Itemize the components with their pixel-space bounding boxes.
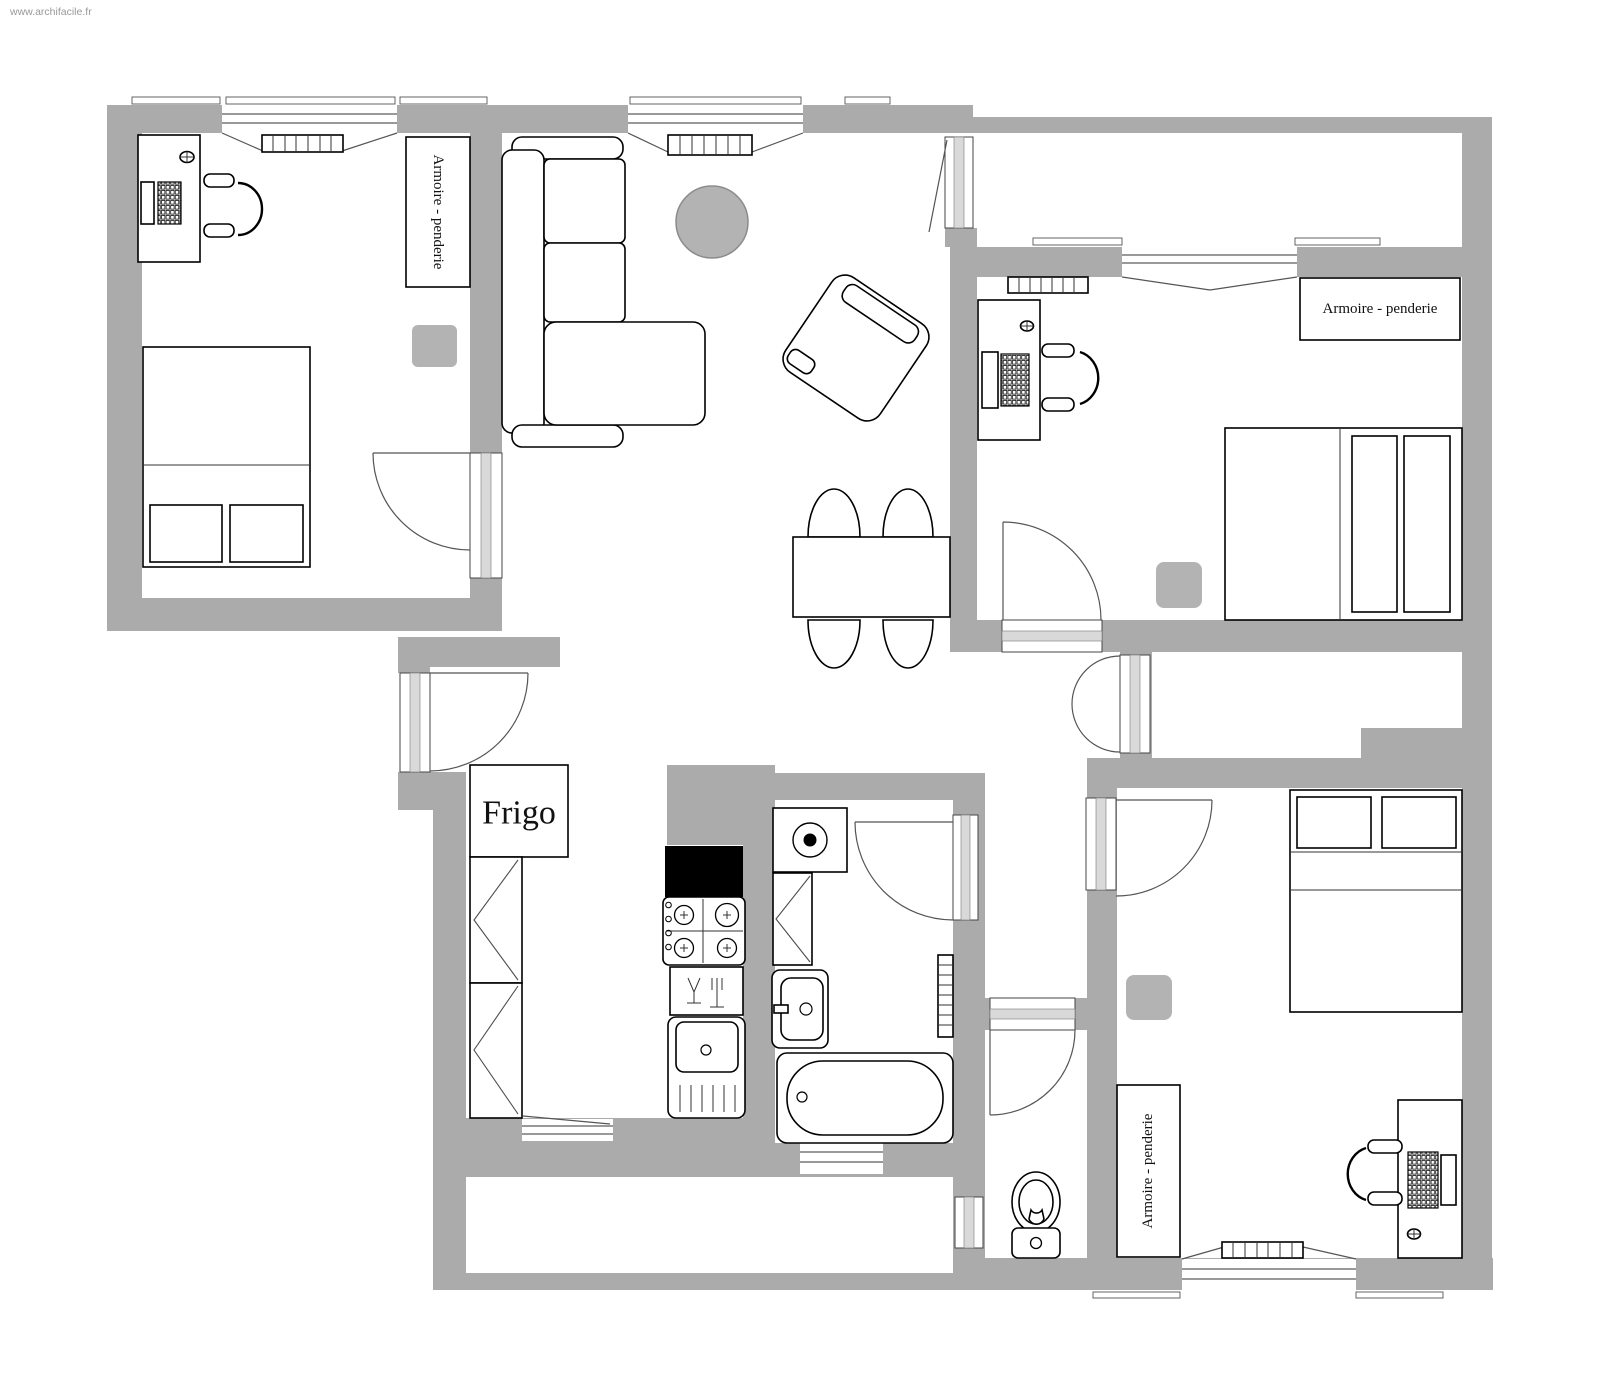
bedroom-1: Armoire - penderie xyxy=(138,135,470,567)
kitchen-counter xyxy=(470,857,522,1118)
radiator-bedroom1 xyxy=(262,135,343,152)
door-wc xyxy=(990,998,1075,1115)
fridge-label: Frigo xyxy=(482,795,556,832)
wardrobe-label: Armoire - penderie xyxy=(1323,301,1438,317)
wall-entry-stub xyxy=(398,667,430,673)
door-double-swing xyxy=(1072,655,1150,753)
stove xyxy=(663,897,745,965)
laptop-keyboard-icon xyxy=(1408,1152,1438,1208)
door-bedroom3 xyxy=(1086,798,1212,896)
bathroom-cabinet xyxy=(773,873,812,965)
mouse-icon xyxy=(1021,321,1034,331)
wall-bedroom2-bottom-right xyxy=(1102,620,1462,652)
wall-entry-corner xyxy=(398,772,466,810)
wall-nook-step xyxy=(1361,728,1462,758)
laptop-screen-icon xyxy=(982,352,998,408)
watermark-text: www.archifacile.fr xyxy=(9,6,92,18)
wardrobe-label: Armoire - penderie xyxy=(430,155,446,270)
pillow xyxy=(150,505,222,562)
radiator-bedroom3 xyxy=(1222,1242,1303,1258)
window-bedroom2 xyxy=(1122,247,1297,290)
corner-sofa xyxy=(502,137,705,447)
wall-wc-sill-right xyxy=(1075,998,1087,1030)
pillow xyxy=(1382,797,1456,848)
nightstand xyxy=(1156,562,1202,608)
living-room xyxy=(502,137,950,668)
wall-hall-top xyxy=(398,637,560,667)
kitchen-sink xyxy=(668,1017,745,1118)
door-loggia xyxy=(955,1197,983,1248)
armchair xyxy=(777,269,935,427)
wall-wc-sill-left xyxy=(985,998,990,1030)
dining-chair xyxy=(808,489,860,537)
bathtub xyxy=(777,1053,953,1143)
nightstand xyxy=(1126,975,1172,1020)
chaise-longue xyxy=(544,322,705,425)
door-bedroom2 xyxy=(1002,522,1102,652)
bed xyxy=(1290,790,1462,1012)
wall-bathroom-top xyxy=(743,773,985,800)
wardrobe: Armoire - penderie xyxy=(406,137,470,287)
wall-bedroom2-bottom-left xyxy=(950,620,1002,652)
pillow xyxy=(1297,797,1371,848)
laptop-keyboard-icon xyxy=(1001,354,1029,406)
wall-bedroom2-left xyxy=(950,245,977,652)
bedroom-2: Armoire - penderie xyxy=(978,278,1462,620)
wall-kitchen-left xyxy=(433,810,466,1290)
washing-machine xyxy=(773,808,847,872)
dining-chair xyxy=(883,620,933,668)
floor-plan: www.archifacile.fr xyxy=(0,0,1600,1397)
floor-plan-canvas: www.archifacile.fr xyxy=(0,0,1600,1397)
fridge: Frigo xyxy=(470,765,568,857)
laptop-keyboard-icon xyxy=(158,182,181,224)
pillow xyxy=(230,505,303,562)
office-chair xyxy=(204,174,262,237)
toilet xyxy=(1012,1172,1060,1258)
wall-bedroom2-top-right xyxy=(1297,247,1462,277)
wall-left-bedroom1 xyxy=(107,105,142,631)
bed xyxy=(1225,428,1462,620)
nightstand xyxy=(412,325,457,367)
door-hall-entrance xyxy=(929,137,973,232)
hood xyxy=(665,846,743,897)
wall-bedroom3-top xyxy=(1087,758,1462,788)
wardrobe: Armoire - penderie xyxy=(1300,278,1460,340)
bed xyxy=(143,347,310,567)
washbasin xyxy=(772,970,828,1048)
dining-chair xyxy=(883,489,933,537)
wardrobe: Armoire - penderie xyxy=(1117,1085,1180,1257)
dining-chair xyxy=(808,620,860,668)
laptop-screen-icon xyxy=(1441,1155,1456,1205)
pillow xyxy=(1404,436,1450,612)
wall-bedroom1-right-upper xyxy=(470,133,502,453)
office-chair xyxy=(1042,344,1098,411)
dining-set xyxy=(793,489,950,668)
door-entry xyxy=(400,673,528,772)
wall-hall-frame-stub xyxy=(945,228,977,247)
window-kitchen xyxy=(522,1116,613,1141)
radiator-towel xyxy=(938,955,953,1037)
radiator-bedroom2 xyxy=(1008,277,1088,293)
wall-loggia-bottom xyxy=(433,1273,960,1290)
wall-kitchen-bath-divider xyxy=(743,845,775,1143)
round-rug xyxy=(676,186,748,258)
laptop-screen-icon xyxy=(141,182,154,224)
window-bathroom xyxy=(800,1142,883,1174)
dining-table xyxy=(793,537,950,617)
wall-junction-gap xyxy=(370,631,528,637)
wall-top-right xyxy=(965,117,1492,133)
dishwasher xyxy=(670,967,743,1015)
pillow xyxy=(1352,436,1397,612)
radiator-living xyxy=(668,135,752,155)
wardrobe-label: Armoire - penderie xyxy=(1140,1113,1156,1228)
mouse-icon xyxy=(180,152,194,163)
door-bedroom1 xyxy=(373,453,502,578)
wc xyxy=(1012,1172,1060,1258)
wall-right xyxy=(1462,117,1492,1290)
wall-bedroom2-top-left xyxy=(977,247,1122,277)
office-chair xyxy=(1348,1140,1402,1205)
mouse-icon xyxy=(1408,1229,1421,1239)
wall-bedroom1-bottom xyxy=(107,598,502,631)
bedroom-3: Armoire - penderie xyxy=(1117,790,1462,1258)
door-bathroom xyxy=(855,815,978,920)
